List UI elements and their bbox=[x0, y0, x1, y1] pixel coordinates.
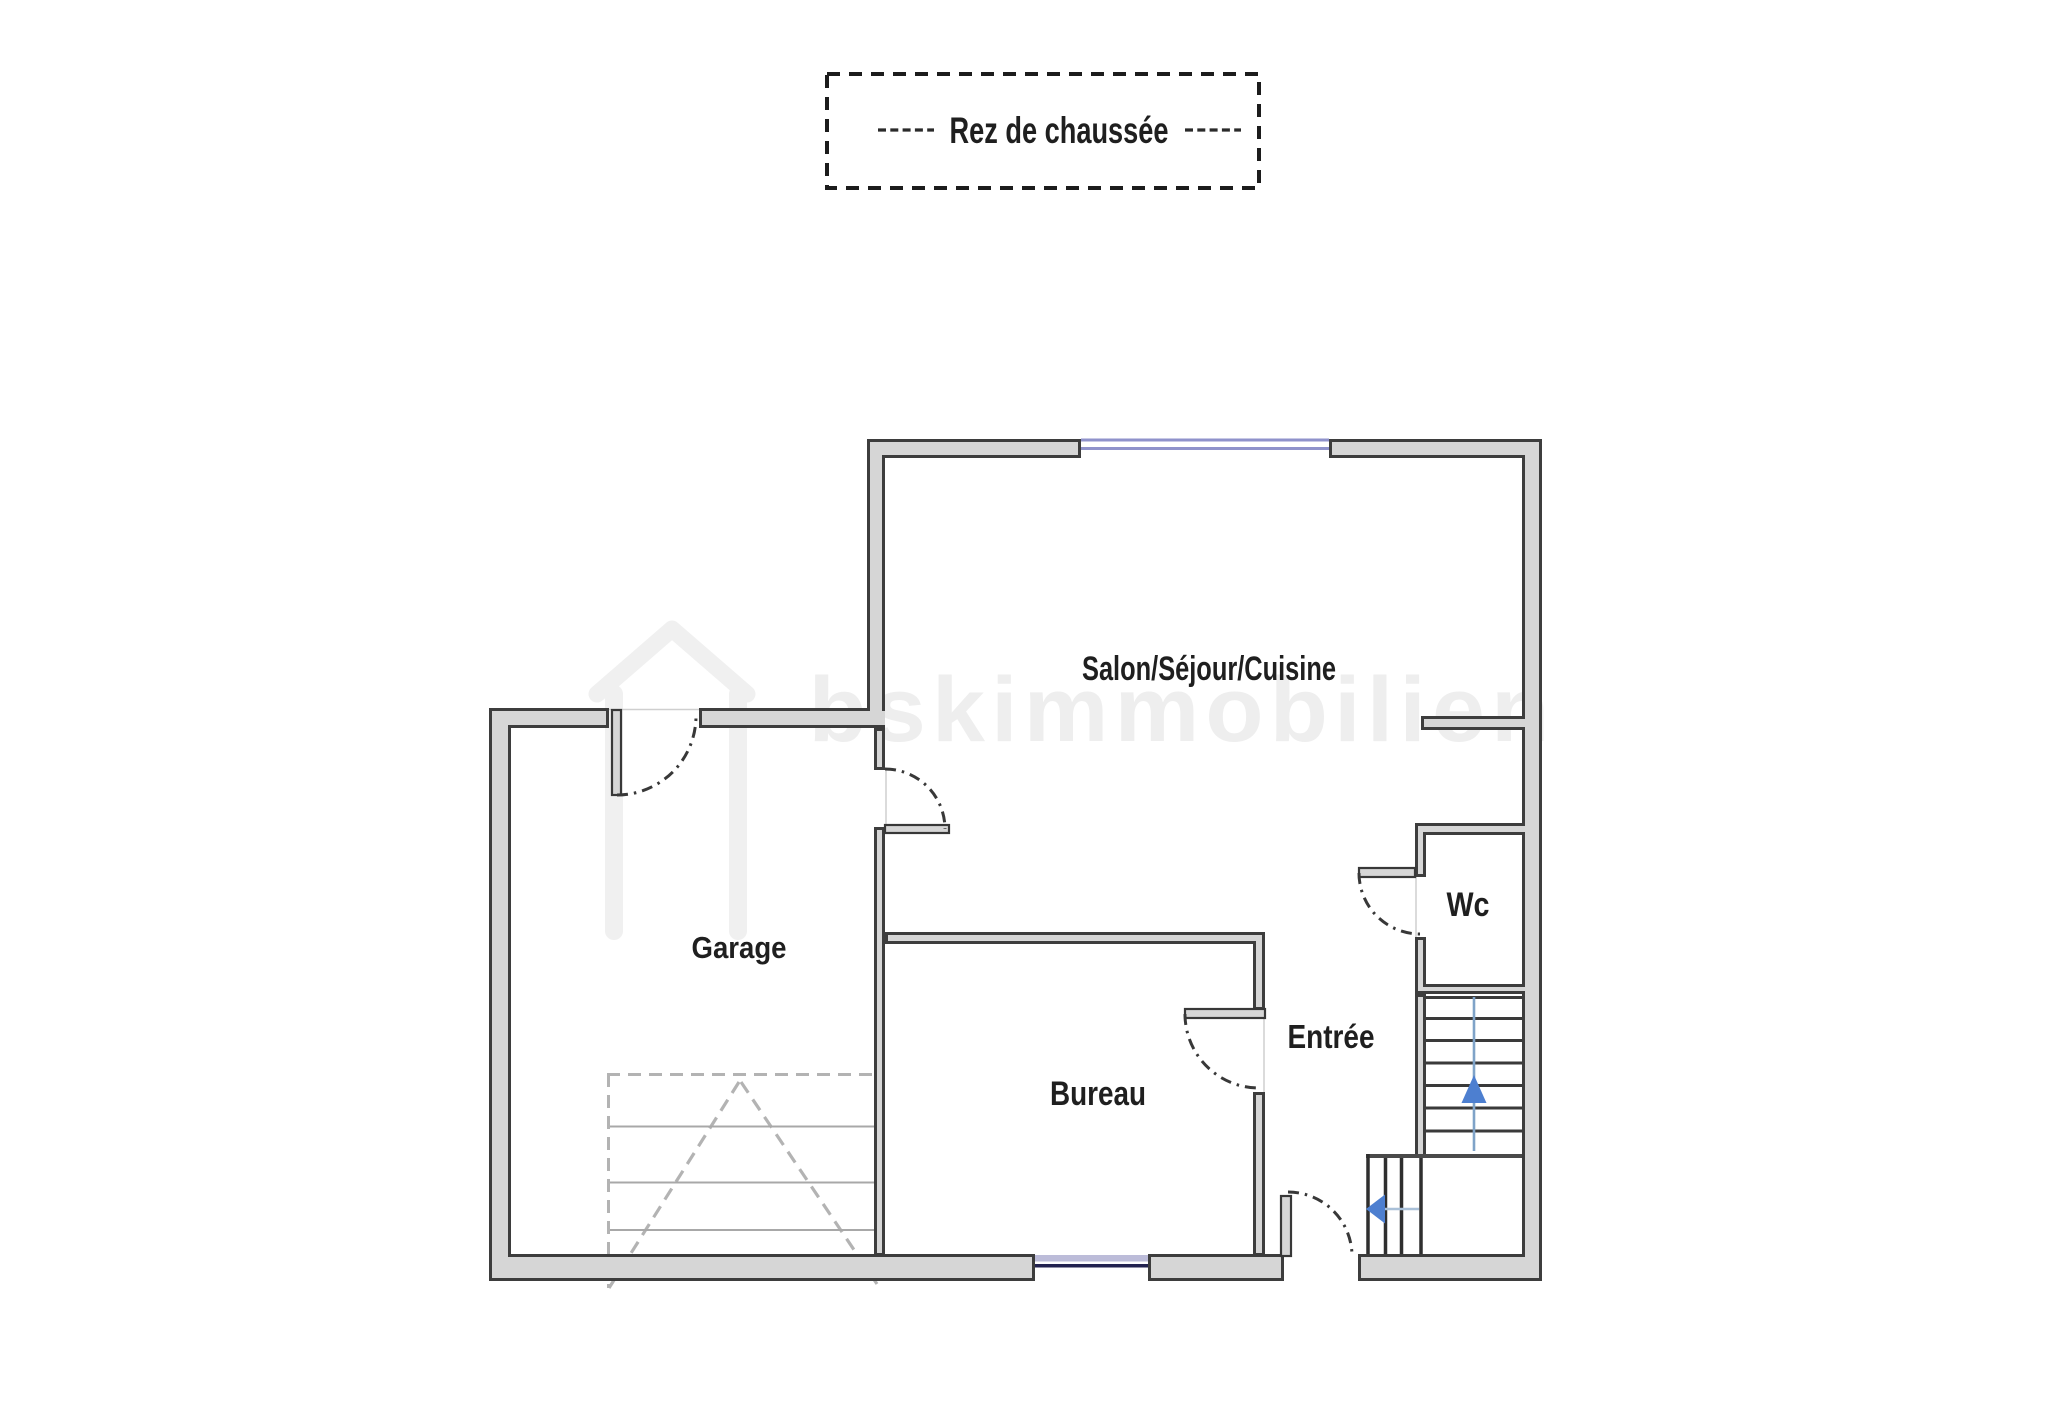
svg-text:Entrée: Entrée bbox=[1288, 1018, 1375, 1055]
svg-text:Salon/Séjour/Cuisine: Salon/Séjour/Cuisine bbox=[1082, 650, 1336, 688]
svg-text:Rez de chaussée: Rez de chaussée bbox=[950, 110, 1169, 151]
svg-text:Garage: Garage bbox=[692, 930, 787, 965]
svg-text:Wc: Wc bbox=[1447, 886, 1490, 924]
svg-text:Bureau: Bureau bbox=[1050, 1075, 1146, 1113]
